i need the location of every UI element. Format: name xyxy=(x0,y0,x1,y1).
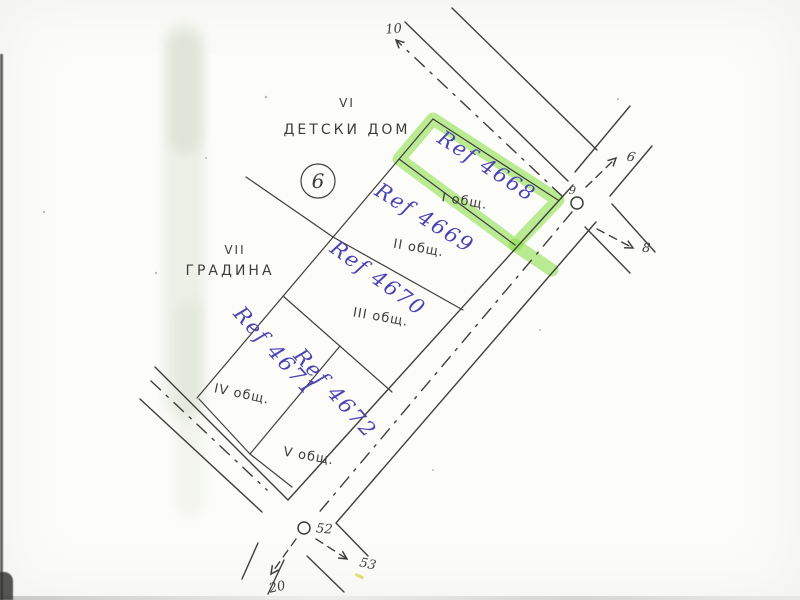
plan-drawing: VI ДЕТСКИ ДОМ 6 VII ГРАДИНА Ref 4668 Ref… xyxy=(0,0,800,600)
scanned-cadastral-plan-page: VI ДЕТСКИ ДОМ 6 VII ГРАДИНА Ref 4668 Ref… xyxy=(0,0,800,600)
region-vi-numeral: VI xyxy=(339,96,355,110)
scan-edge-bottom xyxy=(0,596,800,600)
region-vii-numeral: VII xyxy=(224,243,245,257)
plot-4671-zone-label: IV общ. xyxy=(213,381,271,407)
road-northeast-branch xyxy=(575,106,652,196)
waypoint-8-label: 8 xyxy=(642,241,652,257)
region-vi-name: ДЕТСКИ ДОМ xyxy=(283,122,410,138)
waypoint-10-label: 10 xyxy=(385,21,403,37)
plot-4672-zone-label: V общ. xyxy=(282,445,335,469)
yellow-pencil-speck xyxy=(355,573,364,580)
waypoint-53-label: 53 xyxy=(358,556,377,574)
road-southeast-branch xyxy=(585,204,655,273)
scan-edge-left xyxy=(0,54,3,600)
region-vii-name: ГРАДИНА xyxy=(185,263,274,279)
scan-specks xyxy=(43,96,619,471)
waypoint-20-label: 20 xyxy=(267,579,287,597)
waypoint-6-label: 6 xyxy=(625,149,637,166)
junction-node-south xyxy=(298,522,310,534)
plot-4669-zone-label: II общ. xyxy=(392,237,445,261)
waypoint-9-label: 9 xyxy=(568,184,576,198)
waypoint-52-label: 52 xyxy=(315,521,333,537)
junction-node-north xyxy=(571,197,583,209)
block-number-label: 6 xyxy=(312,169,325,193)
